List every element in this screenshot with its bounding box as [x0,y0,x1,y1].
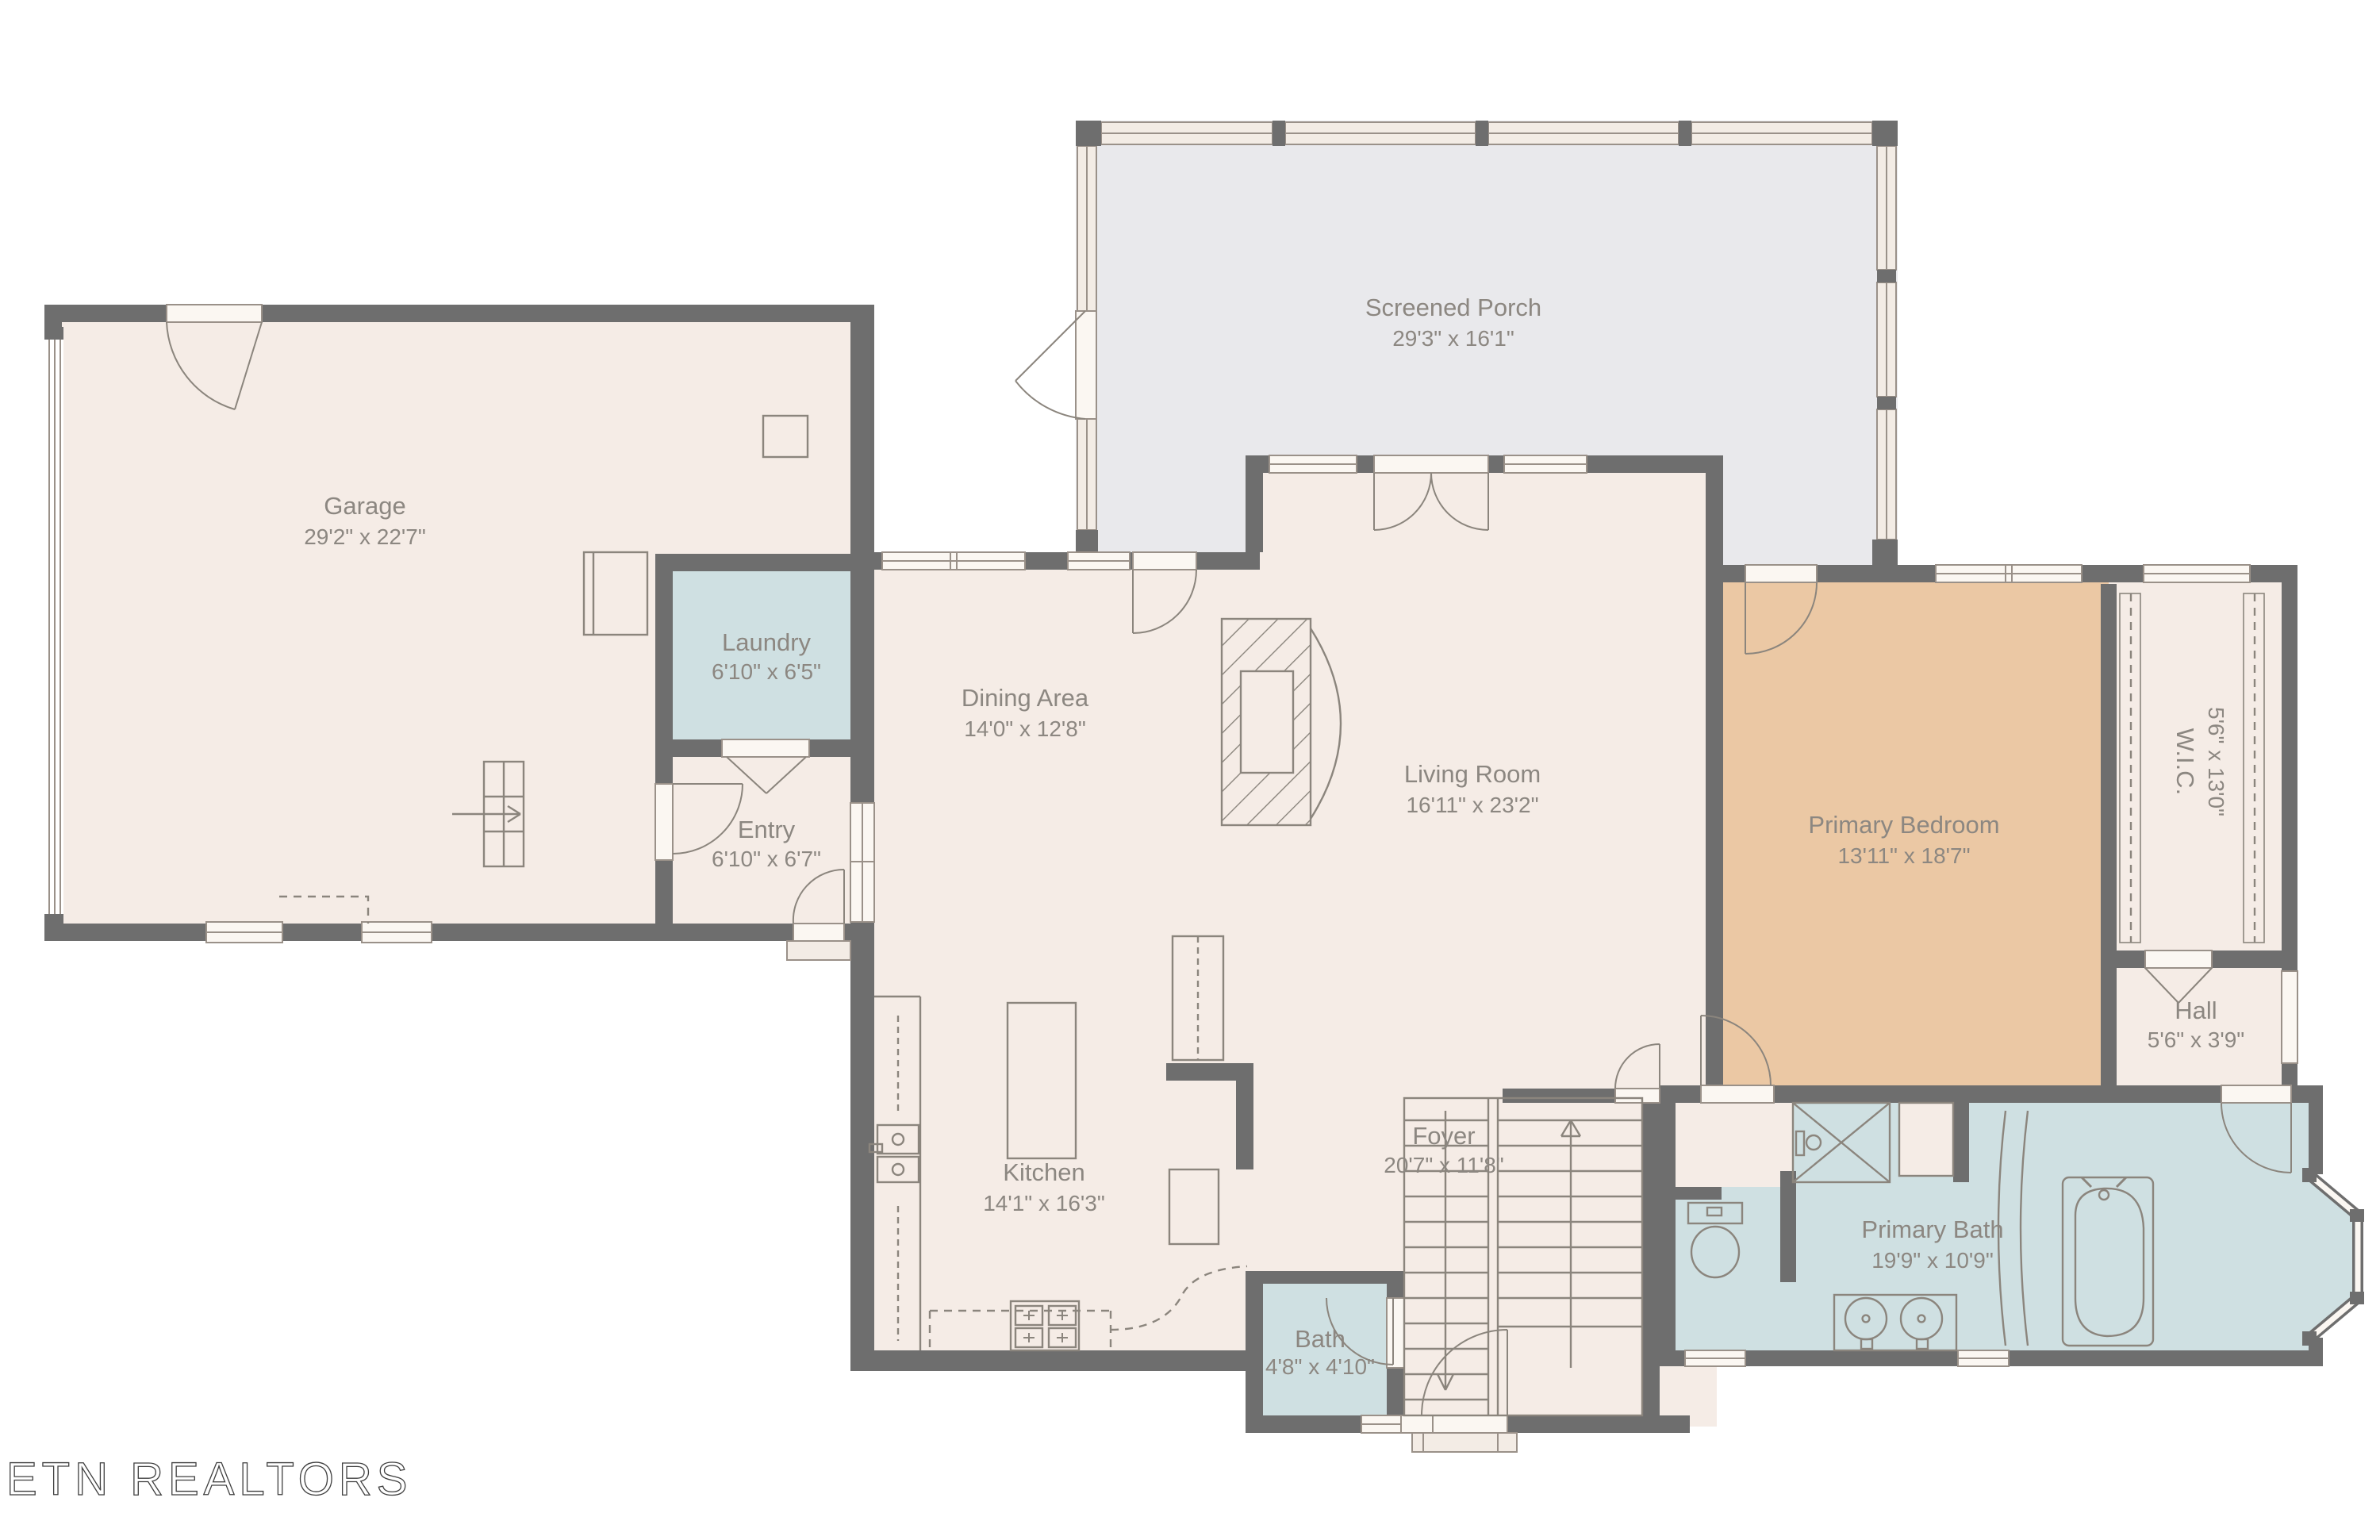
front-stoop [1412,1433,1517,1452]
laundry-label: Laundry [722,628,812,656]
floor-plan: Screened Porch 29'3" x 16'1" Garage 29'2… [0,0,2380,1539]
hall-label: Hall [2175,997,2217,1024]
entry-garage-door [655,784,673,860]
dining-label: Dining Area [962,684,1089,712]
wc-opening [1722,1187,1780,1200]
screened-porch-label: Screened Porch [1365,294,1541,321]
laundry-opening [722,739,809,757]
primary-bedroom-label: Primary Bedroom [1808,811,1999,839]
garage-dims: 29'2" x 22'7" [304,524,426,549]
front-door [1422,1415,1507,1433]
porch-screen-door-arc [1015,311,1085,419]
stairs-top-door [1615,1089,1660,1103]
foyer-dims: 20'7" x 11'8" [1384,1153,1503,1177]
dining-dims: 14'0" x 12'8" [964,716,1086,741]
hall-window [2282,971,2297,1063]
garage-door [44,327,63,927]
entry-exterior-door [793,924,844,941]
bedroom-door [1701,1085,1774,1103]
wic-hall-door [2145,950,2212,968]
wic-dims: 5'6" x 13'0" [2204,707,2228,816]
wic-label: W.I.C. [2171,728,2199,795]
bath-dims: 4'8" x 4'10" [1265,1354,1375,1379]
living-dims: 16'11" x 23'2" [1406,793,1538,817]
primary-bath-label: Primary Bath [1861,1215,2003,1243]
garage-label: Garage [324,492,405,520]
screened-porch-dims: 29'3" x 16'1" [1392,326,1514,351]
living-label: Living Room [1404,760,1541,788]
primary-bedroom-dims: 13'11" x 18'7" [1837,843,1970,868]
kitchen-label: Kitchen [1003,1158,1084,1186]
living-french-doors [1374,455,1488,473]
bath-door [1387,1298,1404,1368]
primary-bath-dims: 19'9" x 10'9" [1871,1248,1994,1273]
kitchen-dims: 14'1" x 16'3" [983,1191,1105,1215]
entry-label: Entry [738,816,796,843]
entry-stoop [787,941,850,960]
laundry-dims: 6'10" x 6'5" [712,659,821,684]
bath-corridor-area [1663,1098,1793,1193]
bath-window [1401,1415,1433,1433]
hall-bath-door [2221,1085,2291,1103]
porch-bedroom-door [1745,565,1817,582]
foyer-label: Foyer [1412,1122,1475,1150]
porch-screen-door [1076,311,1096,419]
linen-closet-area [1899,1103,1953,1176]
bath-label: Bath [1295,1325,1345,1353]
watermark: ETN REALTORS [6,1454,412,1505]
entry-dims: 6'10" x 6'7" [712,847,821,871]
floor-plan-page: Screened Porch 29'3" x 16'1" Garage 29'2… [0,0,2380,1539]
hall-dims: 5'6" x 3'9" [2148,1027,2244,1052]
